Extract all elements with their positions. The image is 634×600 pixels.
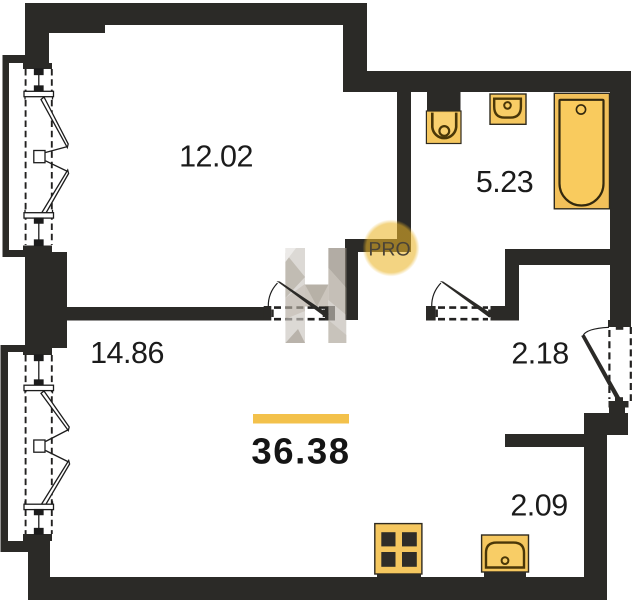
svg-text:14.86: 14.86: [90, 336, 164, 370]
svg-text:PRO: PRO: [368, 239, 410, 261]
svg-text:5.23: 5.23: [476, 165, 533, 199]
svg-text:12.02: 12.02: [179, 140, 253, 174]
svg-text:2.09: 2.09: [510, 489, 567, 523]
svg-text:36.38: 36.38: [251, 431, 350, 472]
svg-text:2.18: 2.18: [511, 337, 568, 371]
